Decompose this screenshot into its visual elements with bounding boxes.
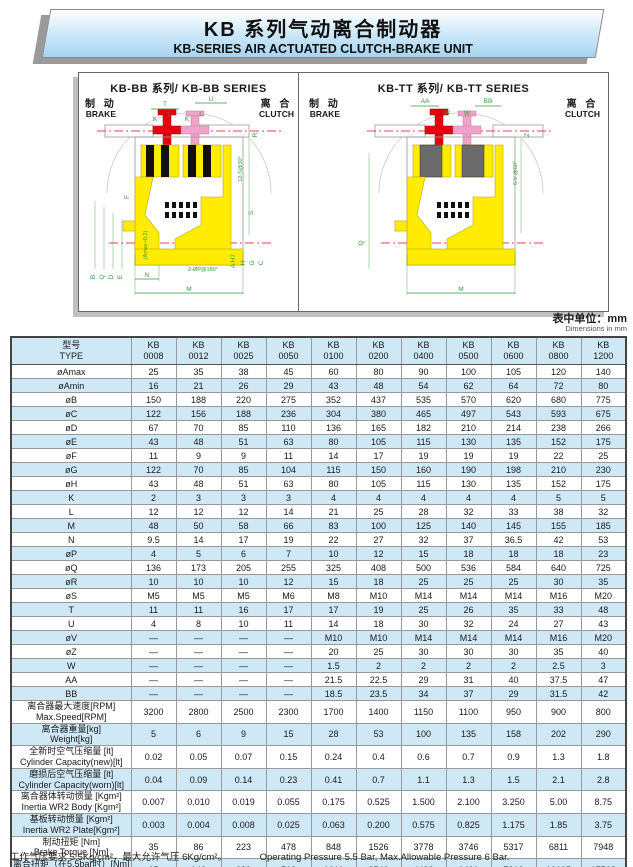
value-cell: 0.7 (446, 746, 491, 769)
row-label: 离合器重量[kg]Weight[kg] (11, 723, 131, 746)
dim-label-k2: K (185, 116, 190, 123)
value-cell: 40 (581, 645, 626, 659)
value-cell: M14 (401, 631, 446, 645)
value-cell: 32 (446, 617, 491, 631)
table-row: øE4348516380105115130135152175 (11, 435, 626, 449)
table-row: øV————M10M10M14M14M14M16M20 (11, 631, 626, 645)
value-cell: M16 (536, 589, 581, 603)
value-cell: 15 (266, 723, 311, 746)
value-cell: 70 (176, 421, 221, 435)
value-cell: 104 (266, 463, 311, 477)
value-cell: 7 (266, 547, 311, 561)
model-header-cell: KB0100 (311, 337, 356, 365)
row-label: øR (11, 575, 131, 589)
row-label: N (11, 533, 131, 547)
value-cell: 640 (536, 561, 581, 575)
row-label: BB (11, 687, 131, 701)
value-cell: 5 (536, 491, 581, 505)
value-cell: 24 (491, 617, 536, 631)
value-cell: 900 (536, 701, 581, 724)
value-cell: 570 (446, 393, 491, 407)
value-cell: 185 (581, 519, 626, 533)
value-cell: 0.063 (311, 813, 356, 836)
value-cell: 18 (356, 617, 401, 631)
value-cell: 800 (581, 701, 626, 724)
value-cell: M14 (401, 589, 446, 603)
row-label: øC (11, 407, 131, 421)
value-cell: 22 (311, 533, 356, 547)
dim-label-k1: K (153, 116, 158, 123)
value-cell: 27 (536, 617, 581, 631)
value-cell: 38 (536, 505, 581, 519)
dim-label-c: C (258, 260, 265, 265)
value-cell: 21.5 (311, 673, 356, 687)
value-cell: 45 (266, 365, 311, 379)
table-header-row: 型号TYPEKB0008KB0012KB0025KB0050KB0100KB02… (11, 337, 626, 365)
dim-label-d: D (108, 274, 115, 279)
value-cell: 140 (581, 365, 626, 379)
value-cell: 0.09 (176, 768, 221, 791)
dim-label-n: N (145, 272, 150, 279)
table-row: øD677085110136165182210214238266 (11, 421, 626, 435)
row-label: W (11, 659, 131, 673)
value-cell: 105 (356, 435, 401, 449)
value-cell: 620 (491, 393, 536, 407)
value-cell: 0.525 (356, 791, 401, 814)
value-cell: M14 (446, 631, 491, 645)
value-cell: 1.5 (311, 659, 356, 673)
table-row: øC122156188236304380465497543593675 (11, 407, 626, 421)
value-cell: 5 (581, 491, 626, 505)
dim-label-p180: 2-ØP@180° (188, 267, 218, 273)
model-header-cell: KB0008 (131, 337, 176, 365)
value-cell: 11 (266, 449, 311, 463)
value-cell: 680 (536, 393, 581, 407)
value-cell: 43 (581, 617, 626, 631)
value-cell: 1150 (401, 701, 446, 724)
row-label: øS (11, 589, 131, 603)
value-cell: 37 (446, 687, 491, 701)
row-label: 基板转动惯量 [Kgm²]Inertia WR2 Plate[Kgm²] (11, 813, 131, 836)
value-cell: 0.055 (266, 791, 311, 814)
value-cell: 5 (131, 723, 176, 746)
dim-label-bb: BB (484, 98, 493, 105)
value-cell: — (221, 645, 266, 659)
value-cell: 165 (356, 421, 401, 435)
model-header-cell: KB0800 (536, 337, 581, 365)
dim-label-l2: L (199, 111, 203, 118)
dim-label-f: F (124, 195, 131, 199)
value-cell: M10 (356, 631, 401, 645)
value-cell: 230 (581, 463, 626, 477)
dim-label-s30: 12-S@30° (238, 156, 244, 182)
value-cell: 12 (266, 575, 311, 589)
panel-kb-tt: KB-TT 系列/ KB-TT SERIES 制 动 BRAKE 离 合 CLU… (299, 73, 608, 311)
model-header-cell: KB0500 (446, 337, 491, 365)
table-row: øQ136173205255325408500536584640725 (11, 561, 626, 575)
dim-label-aa: AA (421, 98, 430, 105)
value-cell: 23.5 (356, 687, 401, 701)
value-cell: 0.02 (131, 746, 176, 769)
value-cell: — (176, 631, 221, 645)
value-cell: 80 (581, 379, 626, 393)
value-cell: 236 (266, 407, 311, 421)
value-cell: 125 (401, 519, 446, 533)
value-cell: 48 (581, 603, 626, 617)
value-cell: 33 (536, 603, 581, 617)
value-cell: 18 (446, 547, 491, 561)
value-cell: 36.5 (491, 533, 536, 547)
value-cell: 80 (356, 365, 401, 379)
value-cell: M5 (131, 589, 176, 603)
row-label: øP (11, 547, 131, 561)
value-cell: 29 (401, 673, 446, 687)
value-cell: 35 (581, 575, 626, 589)
value-cell: 63 (266, 435, 311, 449)
value-cell: 122 (131, 407, 176, 421)
row-label: øB (11, 393, 131, 407)
model-header-cell: KB0025 (221, 337, 266, 365)
value-cell: 72 (536, 379, 581, 393)
table-row: U48101114183032242743 (11, 617, 626, 631)
value-cell: 0.24 (311, 746, 356, 769)
value-cell: M10 (311, 631, 356, 645)
row-label: K (11, 491, 131, 505)
value-cell: 2 (446, 659, 491, 673)
model-header-cell: KB0400 (401, 337, 446, 365)
value-cell: 18.5 (311, 687, 356, 701)
value-cell: 0.825 (446, 813, 491, 836)
value-cell: 9 (176, 449, 221, 463)
value-cell: 80 (311, 477, 356, 491)
row-label: M (11, 519, 131, 533)
value-cell: 19 (356, 603, 401, 617)
value-cell: 60 (311, 365, 356, 379)
table-row: øZ————20253030303540 (11, 645, 626, 659)
value-cell: 2.100 (446, 791, 491, 814)
value-cell: 15 (311, 575, 356, 589)
value-cell: 9.5 (131, 533, 176, 547)
table-row: W————1.522222.53 (11, 659, 626, 673)
value-cell: 150 (131, 393, 176, 407)
value-cell: 64 (491, 379, 536, 393)
value-cell: 136 (311, 421, 356, 435)
row-label: øG (11, 463, 131, 477)
value-cell: 136 (131, 561, 176, 575)
dim-label-q: Q (99, 274, 106, 279)
value-cell: 380 (356, 407, 401, 421)
value-cell: 9 (221, 723, 266, 746)
table-row: øB150188220275352437535570620680775 (11, 393, 626, 407)
value-cell: 19 (446, 449, 491, 463)
value-cell: 11 (266, 617, 311, 631)
type-header-cell: 型号TYPE (11, 337, 131, 365)
value-cell: 25 (356, 645, 401, 659)
value-cell: 31.5 (536, 687, 581, 701)
value-cell: 37 (446, 533, 491, 547)
value-cell: 30 (491, 645, 536, 659)
value-cell: M16 (536, 631, 581, 645)
value-cell: 0.004 (176, 813, 221, 836)
header-banner: KB 系列气动离合制动器 KB-SERIES AIR ACTUATED CLUT… (42, 9, 605, 58)
value-cell: 0.9 (491, 746, 536, 769)
value-cell: — (221, 659, 266, 673)
value-cell: 155 (536, 519, 581, 533)
value-cell: 30 (401, 645, 446, 659)
value-cell: 2 (401, 659, 446, 673)
table-row: K23334444455 (11, 491, 626, 505)
value-cell: — (266, 659, 311, 673)
value-cell: 2.8 (581, 768, 626, 791)
value-cell: 3 (221, 491, 266, 505)
value-cell: 1.3 (536, 746, 581, 769)
value-cell: 0.008 (221, 813, 266, 836)
kb-bb-cross-section-diagram: T U K L K L R 12-S@30° S F (Amax+0.2) B … (79, 93, 298, 305)
value-cell: 4 (491, 491, 536, 505)
value-cell: 28 (401, 505, 446, 519)
value-cell: 2800 (176, 701, 221, 724)
value-cell: 19 (401, 449, 446, 463)
value-cell: 12 (176, 505, 221, 519)
value-cell: 22 (536, 449, 581, 463)
footer-note-en: Operating Pressure 5.5 Bar, Max.Allowabl… (260, 852, 510, 863)
value-cell: 34 (401, 687, 446, 701)
value-cell: 2 (356, 659, 401, 673)
value-cell: 18 (356, 575, 401, 589)
value-cell: 27 (356, 533, 401, 547)
value-cell: 675 (581, 407, 626, 421)
value-cell: 25 (131, 365, 176, 379)
value-cell: 29 (491, 687, 536, 701)
value-cell: 3 (176, 491, 221, 505)
value-cell: 23 (581, 547, 626, 561)
value-cell: 198 (491, 463, 536, 477)
value-cell: 1400 (356, 701, 401, 724)
value-cell: 8 (176, 617, 221, 631)
value-cell: 0.025 (266, 813, 311, 836)
value-cell: 25 (401, 575, 446, 589)
value-cell: 10105 (536, 859, 581, 867)
value-cell: 255 (266, 561, 311, 575)
row-label: øF (11, 449, 131, 463)
dim-label-m-tt: M (458, 286, 463, 293)
row-label: AA (11, 673, 131, 687)
value-cell: 28 (311, 723, 356, 746)
value-cell: 14 (311, 617, 356, 631)
value-cell: 25 (356, 505, 401, 519)
value-cell: 130 (446, 477, 491, 491)
table-row: øP456710121518181823 (11, 547, 626, 561)
value-cell: 63 (266, 477, 311, 491)
value-cell: 725 (581, 561, 626, 575)
row-label: U (11, 617, 131, 631)
value-cell: 14 (266, 505, 311, 519)
value-cell: 4 (356, 491, 401, 505)
value-cell: 19 (266, 533, 311, 547)
value-cell: 66 (266, 519, 311, 533)
value-cell: 100 (446, 365, 491, 379)
row-label: øAmax (11, 365, 131, 379)
value-cell: 2 (131, 491, 176, 505)
table-row: 离合器重量[kg]Weight[kg]569152853100135158202… (11, 723, 626, 746)
page-title-zh: KB 系列气动离合制动器 (47, 13, 599, 42)
value-cell: 0.4 (356, 746, 401, 769)
value-cell: 2.1 (536, 768, 581, 791)
value-cell: 156 (176, 407, 221, 421)
value-cell: 266 (581, 421, 626, 435)
value-cell: 53 (581, 533, 626, 547)
table-row: øSM5M5M5M6M8M10M14M14M14M16M20 (11, 589, 626, 603)
value-cell: 0.15 (266, 746, 311, 769)
value-cell: — (221, 673, 266, 687)
value-cell: 105 (356, 477, 401, 491)
value-cell: 48 (176, 477, 221, 491)
value-cell: — (266, 631, 311, 645)
value-cell: 152 (536, 477, 581, 491)
value-cell: 0.007 (131, 791, 176, 814)
value-cell: 30 (401, 617, 446, 631)
value-cell: 584 (491, 561, 536, 575)
dim-label-e: E (117, 274, 124, 279)
value-cell: 1.1 (401, 768, 446, 791)
value-cell: 14 (176, 533, 221, 547)
row-label: øD (11, 421, 131, 435)
value-cell: 173 (176, 561, 221, 575)
row-label: øQ (11, 561, 131, 575)
value-cell: 5 (176, 547, 221, 561)
table-row: BB————18.523.534372931.542 (11, 687, 626, 701)
value-cell: 30 (536, 575, 581, 589)
value-cell: 2300 (266, 701, 311, 724)
value-cell: 105 (491, 365, 536, 379)
value-cell: 188 (221, 407, 266, 421)
model-header-cell: KB0200 (356, 337, 401, 365)
value-cell: 26 (221, 379, 266, 393)
value-cell: 70 (176, 463, 221, 477)
dim-label-u: U (209, 96, 214, 103)
value-cell: 543 (491, 407, 536, 421)
value-cell: M8 (311, 589, 356, 603)
value-cell: 17 (266, 603, 311, 617)
value-cell: 190 (446, 463, 491, 477)
table-row: AA————21.522.529314037.547 (11, 673, 626, 687)
value-cell: 210 (536, 463, 581, 477)
value-cell: 4 (401, 491, 446, 505)
table-row: øG1227085104115150160190198210230 (11, 463, 626, 477)
value-cell: 158 (491, 723, 536, 746)
value-cell: 3.250 (491, 791, 536, 814)
value-cell: 775 (581, 393, 626, 407)
value-cell: 22.5 (356, 673, 401, 687)
value-cell: 48 (176, 435, 221, 449)
value-cell: M20 (581, 631, 626, 645)
value-cell: 145 (491, 519, 536, 533)
value-cell: 6 (176, 723, 221, 746)
value-cell: 535 (401, 393, 446, 407)
value-cell: 35 (536, 645, 581, 659)
value-cell: 0.200 (356, 813, 401, 836)
value-cell: 0.575 (401, 813, 446, 836)
dim-label-r: R (252, 132, 259, 137)
dim-label-ah7: A H7 (230, 254, 237, 268)
value-cell: — (176, 673, 221, 687)
value-cell: 35 (491, 603, 536, 617)
value-cell: 17568 (581, 859, 626, 867)
model-header-cell: KB1200 (581, 337, 626, 365)
table-row: N9.51417192227323736.54253 (11, 533, 626, 547)
value-cell: 50 (176, 519, 221, 533)
spec-table: 型号TYPEKB0008KB0012KB0025KB0050KB0100KB02… (10, 336, 627, 867)
table-row: øR1010101215182525253035 (11, 575, 626, 589)
value-cell: 1.3 (446, 768, 491, 791)
unit-note: 表中单位：mm Dimensions in mm (552, 313, 627, 333)
value-cell: 10 (221, 575, 266, 589)
value-cell: — (266, 687, 311, 701)
value-cell: 43 (131, 477, 176, 491)
footer-note: 工作气压要求 5.5Kg/cm²，最大允许气压 6Kg/cm²。 Operati… (10, 849, 509, 863)
row-label: 磨损后空气压缩量 [lt]Cylinder Capacity(worn)[lt] (11, 768, 131, 791)
value-cell: 352 (311, 393, 356, 407)
value-cell: 51 (221, 477, 266, 491)
value-cell: 188 (176, 393, 221, 407)
row-label: øH (11, 477, 131, 491)
dim-label-v60: 6-V @60° (513, 161, 519, 185)
value-cell: — (266, 673, 311, 687)
value-cell: 135 (491, 477, 536, 491)
row-label: T (11, 603, 131, 617)
value-cell: 43 (131, 435, 176, 449)
diagram-box: KB-BB 系列/ KB-BB SERIES 制 动 BRAKE 离 合 CLU… (78, 72, 609, 312)
value-cell: 30 (446, 645, 491, 659)
value-cell: 11 (131, 603, 176, 617)
row-label: øZ (11, 645, 131, 659)
value-cell: 135 (491, 435, 536, 449)
value-cell: — (131, 645, 176, 659)
value-cell: 536 (446, 561, 491, 575)
value-cell: — (131, 673, 176, 687)
value-cell: 62 (446, 379, 491, 393)
value-cell: 100 (401, 723, 446, 746)
table-row: M4850586683100125140145155185 (11, 519, 626, 533)
model-header-cell: KB0012 (176, 337, 221, 365)
value-cell: 85 (221, 421, 266, 435)
page-title-en: KB-SERIES AIR ACTUATED CLUTCH-BRAKE UNIT (47, 42, 599, 56)
value-cell: 140 (446, 519, 491, 533)
value-cell: M5 (221, 589, 266, 603)
value-cell: 83 (311, 519, 356, 533)
dim-label-z: Z (524, 133, 531, 137)
value-cell: 593 (536, 407, 581, 421)
value-cell: 16 (131, 379, 176, 393)
value-cell: 80 (311, 435, 356, 449)
value-cell: 214 (491, 421, 536, 435)
value-cell: 950 (491, 701, 536, 724)
value-cell: 210 (446, 421, 491, 435)
table-row: øF11991114171919192225 (11, 449, 626, 463)
table-row: 全新时空气压缩量 [lt]Cylinder Capacity(new)[lt]0… (11, 746, 626, 769)
value-cell: 4 (131, 617, 176, 631)
value-cell: 110 (266, 421, 311, 435)
value-cell: 150 (356, 463, 401, 477)
value-cell: 0.07 (221, 746, 266, 769)
value-cell: 205 (221, 561, 266, 575)
value-cell: 33 (491, 505, 536, 519)
value-cell: 202 (536, 723, 581, 746)
value-cell: M14 (491, 589, 536, 603)
value-cell: 11 (131, 449, 176, 463)
value-cell: — (176, 687, 221, 701)
value-cell: 25 (491, 575, 536, 589)
